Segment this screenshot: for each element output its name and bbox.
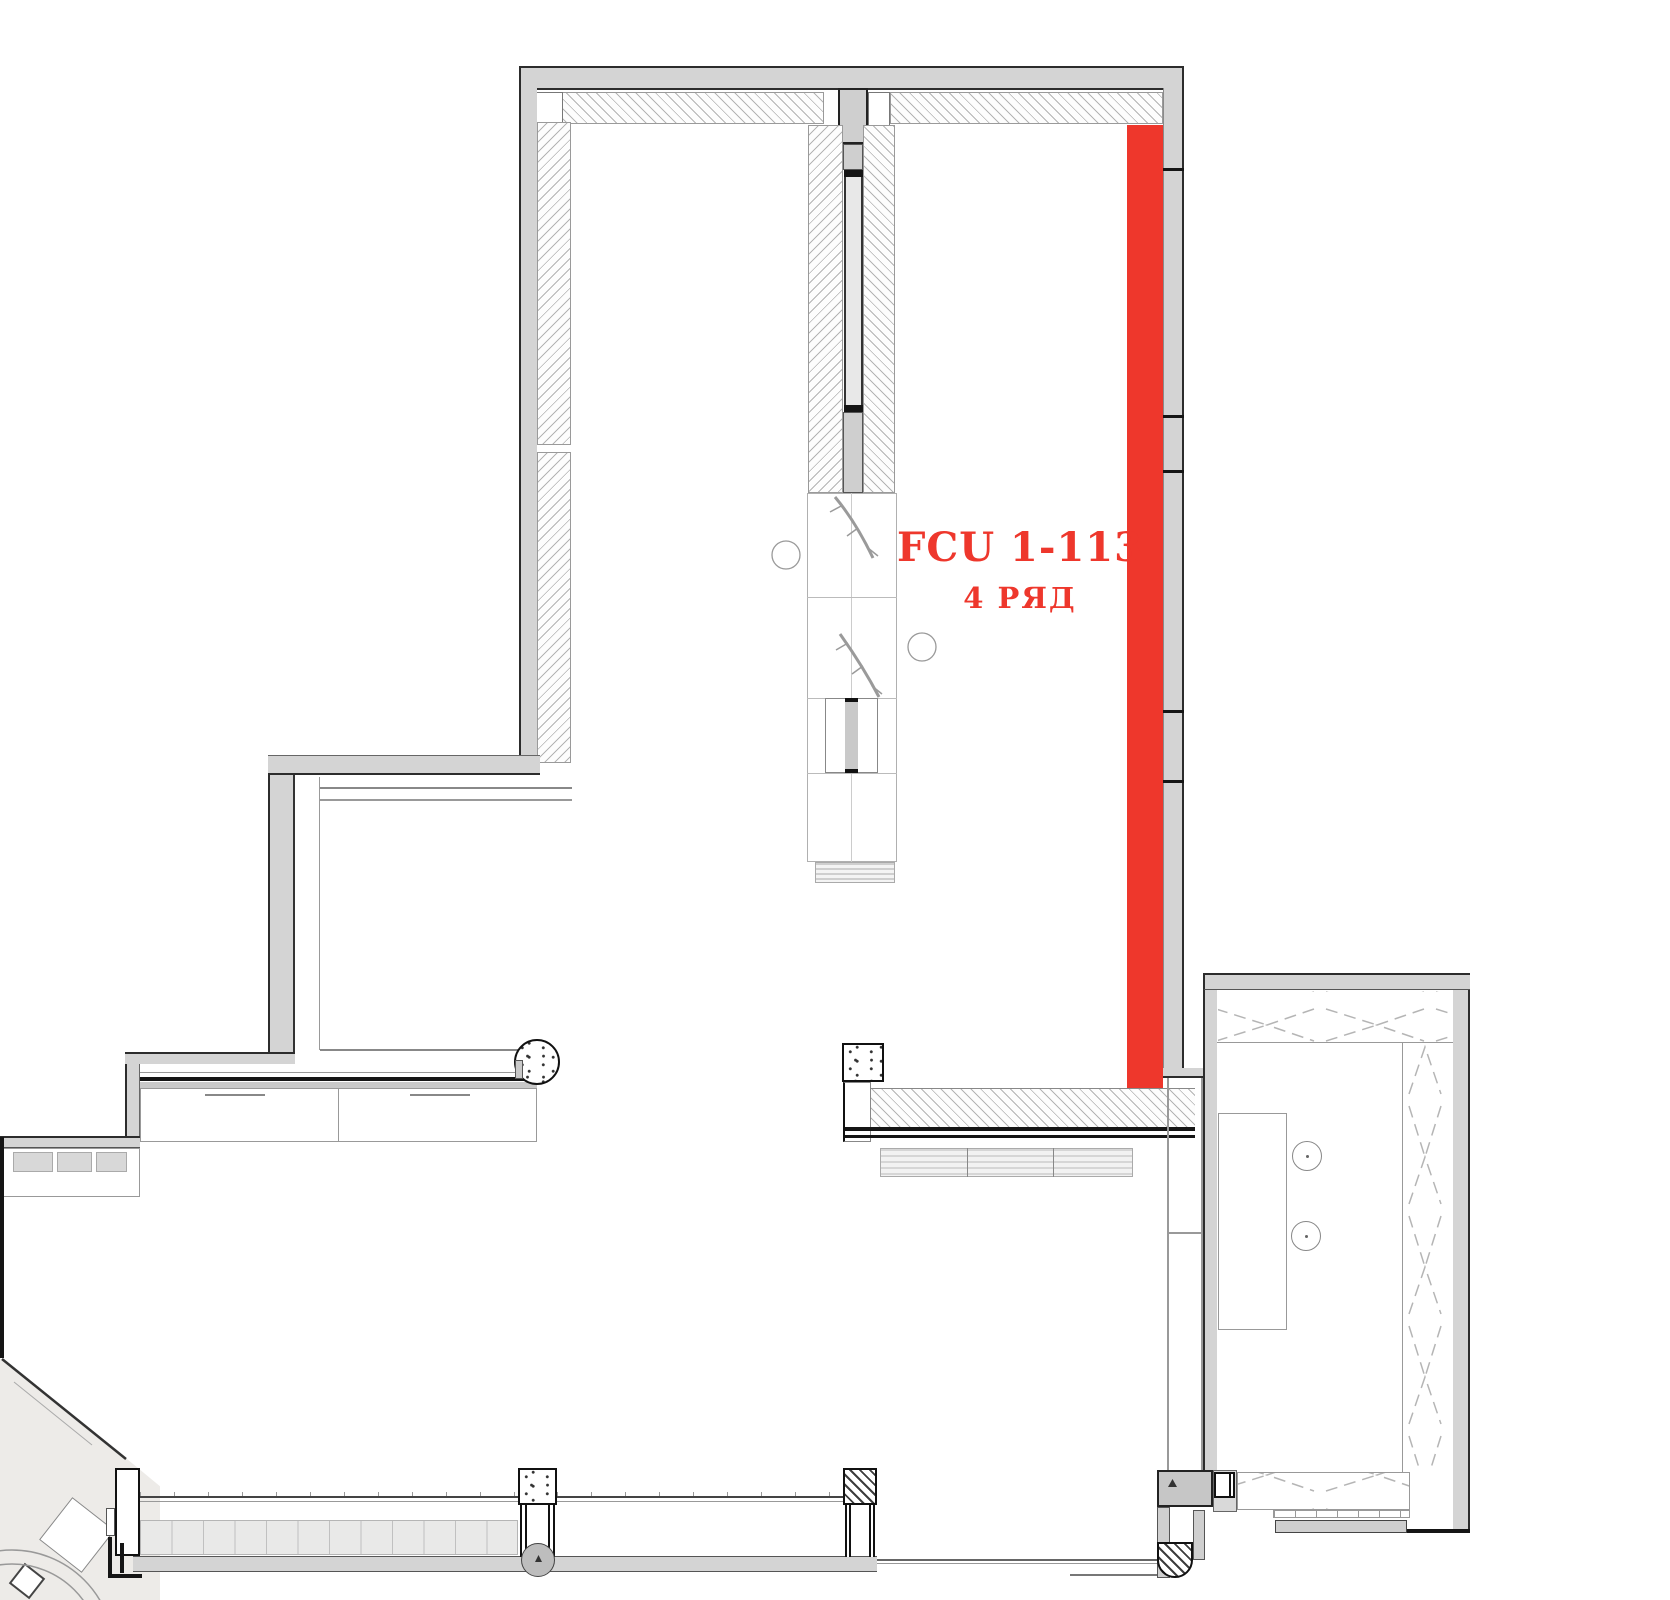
room2-top-wall — [1203, 973, 1470, 990]
halfround-column — [1157, 1542, 1193, 1578]
step-wall-2 — [125, 1052, 295, 1064]
ceiling-fixture-2 — [908, 633, 936, 661]
top-hatch-band-right — [890, 92, 1163, 124]
left-wall — [519, 88, 537, 768]
mid-wall-gray-strip-upper — [843, 144, 863, 170]
counter-window-dark — [140, 1077, 537, 1081]
mid-glazing-cap-top — [844, 170, 863, 177]
mid-wall-hatch-left — [808, 125, 843, 493]
sill-cabinet-row — [880, 1148, 1133, 1177]
sill-front-line-2 — [845, 1135, 1195, 1138]
mid-wall-hatch-right — [863, 125, 895, 493]
wardrobe-center-line — [851, 493, 852, 862]
entry-block — [1157, 1470, 1213, 1507]
soffit-line-2 — [320, 799, 572, 801]
window-line-right — [877, 1559, 1157, 1561]
facade-corner-line-3 — [108, 1574, 142, 1578]
shelf-wall — [0, 1136, 140, 1148]
curtain-wall-joint-2 — [1163, 415, 1184, 418]
stool-1-dot — [1306, 1155, 1309, 1158]
door-jamb-east-2 — [869, 1505, 875, 1557]
curtain-wall-joint-3 — [1163, 470, 1184, 473]
curtain-wall-joint-4 — [1163, 710, 1184, 713]
curtain-wall-joint-1 — [1163, 168, 1184, 171]
window-line-mid — [557, 1496, 843, 1498]
radiator-grille — [815, 862, 895, 883]
column-facade-east — [843, 1468, 877, 1505]
top-hatch-band-left — [537, 92, 824, 124]
window-line-mid-2 — [557, 1501, 843, 1502]
cabinet-handle-1 — [205, 1094, 265, 1096]
wardrobe-track — [1273, 1510, 1410, 1518]
shelf-box-1 — [13, 1152, 53, 1172]
left-wall-low — [125, 1064, 140, 1136]
curtain-wall-corner — [1163, 1068, 1203, 1078]
top-column-side-box — [868, 92, 890, 128]
column-facade-west — [115, 1468, 140, 1556]
sill-cabinet-div-1 — [967, 1148, 968, 1177]
bottom-wall-band — [133, 1556, 877, 1572]
bench-radiator — [140, 1520, 518, 1555]
entry-jamb-2 — [1193, 1510, 1205, 1560]
door-jamb-east-1 — [845, 1505, 851, 1557]
facade-west-knob — [106, 1508, 115, 1536]
floor-plan-canvas: FCU 1-113 4 РЯД — [0, 0, 1670, 1600]
window-sill-hatch — [871, 1088, 1195, 1127]
sill-end-box — [843, 1082, 871, 1142]
wardrobe-right-outline — [1402, 1043, 1453, 1472]
facade-corner-line-1 — [108, 1537, 112, 1578]
shaft-box — [1214, 1472, 1235, 1498]
pocket-door-bar — [845, 698, 858, 773]
left-wall-hatch-upper — [537, 122, 571, 445]
left-wall-hatch-lower — [537, 452, 571, 763]
soffit-line-1 — [320, 787, 572, 789]
left-boundary-line — [0, 1137, 4, 1358]
room2-bottom-line — [1407, 1529, 1470, 1533]
counter-cabinet-divider — [338, 1088, 339, 1142]
counter-window-thin — [140, 1072, 537, 1073]
left-wall-mid — [268, 775, 295, 1058]
room2-left-wall — [1203, 990, 1217, 1470]
mid-wall-glazing — [844, 170, 863, 412]
curtain-wall-joint-5 — [1163, 780, 1184, 783]
shelf-box-3 — [96, 1152, 127, 1172]
sink-tab — [515, 1060, 523, 1079]
wardrobe-top-outline — [1217, 990, 1453, 1043]
ceiling-fixture-1 — [772, 541, 800, 569]
wardrobe-divider-3 — [807, 773, 897, 774]
sill-front-line-1 — [845, 1127, 1195, 1131]
cabinet-handle-2 — [410, 1094, 470, 1096]
shaft-box-divider — [1229, 1472, 1231, 1498]
niche-shelf-tick — [1167, 1232, 1203, 1234]
mid-glazing-cap-bottom — [844, 405, 863, 412]
sill-cabinet-div-2 — [1053, 1148, 1054, 1177]
window-line-right-3 — [1070, 1574, 1157, 1576]
top-wall — [519, 66, 1184, 90]
shelf-box-2 — [57, 1152, 92, 1172]
window-line-left — [140, 1496, 518, 1498]
window-line-left-2 — [140, 1501, 518, 1502]
stool-2-dot — [1305, 1235, 1308, 1238]
kitchen-island — [1218, 1113, 1287, 1330]
row-label: 4 РЯД — [880, 584, 1160, 613]
wardrobe-bottom-outline — [1237, 1472, 1410, 1510]
fcu-label: FCU 1-113 — [880, 528, 1160, 568]
room2-sill-bar — [1275, 1520, 1407, 1533]
curtain-wall-right — [1163, 88, 1184, 1068]
niche-line-left — [1167, 1078, 1169, 1470]
column-facade-mid — [518, 1468, 557, 1505]
mid-wall-gray-strip-lower — [843, 412, 863, 493]
room2-right-wall — [1453, 990, 1470, 1533]
window-line-right-2 — [877, 1563, 1157, 1564]
step-wall — [268, 755, 540, 775]
column-sill-west — [842, 1043, 884, 1082]
wall-furring-strip — [297, 777, 320, 1050]
counter-back-line — [320, 1049, 537, 1051]
facade-corner-line-2 — [120, 1543, 124, 1573]
